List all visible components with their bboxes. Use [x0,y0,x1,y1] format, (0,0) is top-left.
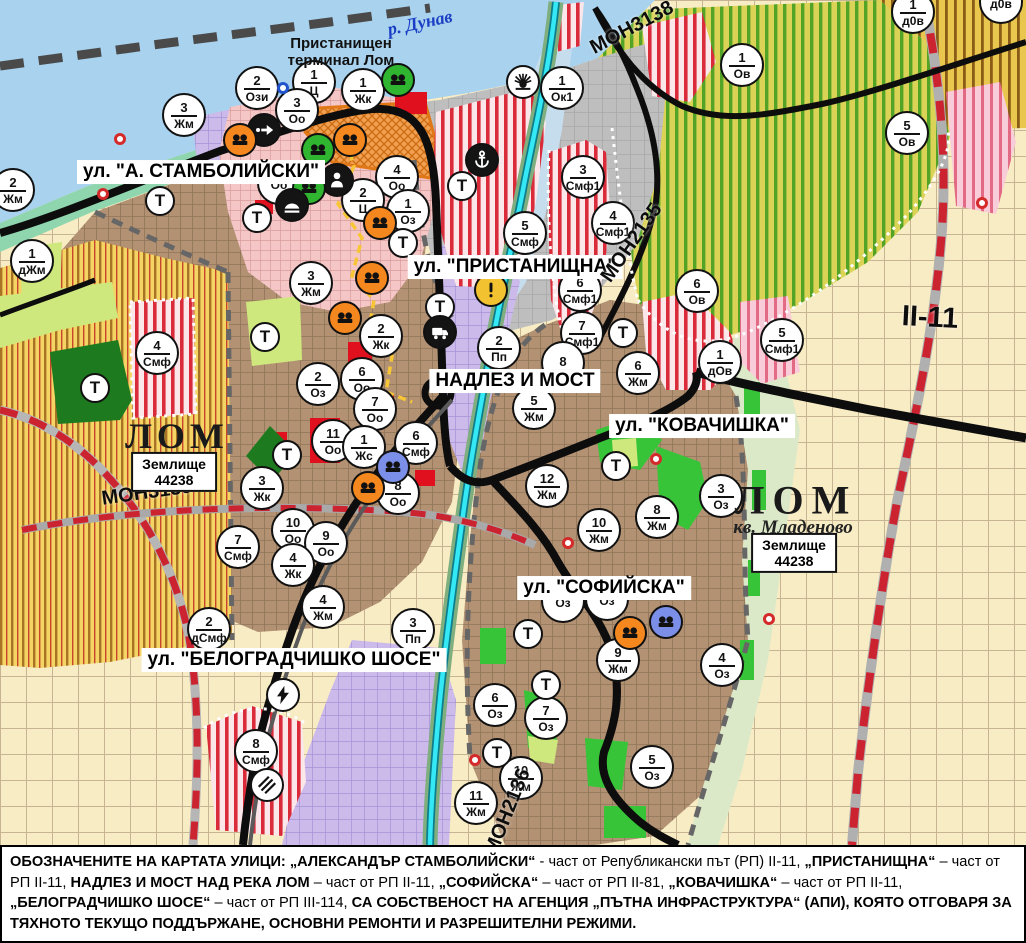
zone-marker-code: Оо [325,444,342,456]
zone-marker[interactable]: 3Жм [162,93,206,137]
zone-marker-number: 12 [540,472,554,485]
zone-marker-number: 3 [258,474,265,487]
mound-icon[interactable] [275,188,309,222]
zone-marker-number: 7 [578,319,585,332]
zone-marker[interactable]: 6Смф1 [558,268,602,312]
zone-marker-code: Ок1 [551,91,573,103]
zone-marker-code: Жм [301,286,321,298]
caption-segment: – част от РП II-81, [538,875,668,891]
zone-marker-number: 1 [909,0,916,11]
zone-marker-number: 5 [521,219,528,232]
zone-marker-number: 2 [314,370,321,383]
poi-dot[interactable] [114,133,126,145]
transport-t-marker[interactable]: Т [531,670,561,700]
zone-marker-number: 10 [592,516,606,529]
zone-marker-number: 1 [558,74,565,87]
zone-marker[interactable]: 1дЖм [10,239,54,283]
ind-glyph [369,212,391,234]
zone-marker-number: 8 [653,503,660,516]
zone-marker-number: 2 [205,615,212,628]
zone-marker-number: 5 [530,394,537,407]
zone-marker[interactable]: 3Смф1 [561,155,605,199]
zone-marker-code: Оз [400,214,415,226]
zone-marker[interactable]: 12Жм [525,464,569,508]
zone-marker-code: Жм [466,806,486,818]
caption-segment: „ПРИСТАНИЩНА“ [804,854,935,870]
zone-marker-number: 6 [412,429,419,442]
zone-marker-code: Жм [3,193,23,205]
zone-marker-code: Смф1 [566,180,601,192]
zone-marker-code: Жм [608,663,628,675]
zone-marker-number: 6 [693,277,700,290]
transport-t-marker[interactable]: Т [513,619,543,649]
zone-marker[interactable]: 2Ози [235,66,279,110]
zone-marker-code: Оз [555,597,570,609]
zone-marker[interactable]: 4Оз [700,643,744,687]
caption-segment: НАДЛЕЗ И МОСТ НАД РЕКА ЛОМ [71,875,310,891]
zone-marker-code: Жм [628,376,648,388]
transport-t-marker[interactable]: Т [80,373,110,403]
zone-marker[interactable]: 3Оз [699,474,743,518]
zone-marker[interactable]: 5Ов [885,111,929,155]
zone-marker-code: Ов [899,136,916,148]
poi-dot[interactable] [763,613,775,625]
poi-dot[interactable] [469,754,481,766]
ind-glyph [655,611,677,633]
zone-marker-code: Смф [224,550,252,562]
zone-marker[interactable]: 8 [541,341,585,385]
zone-marker-code: Жм [524,411,544,423]
railx-glyph [256,774,278,796]
zone-marker[interactable]: 1дОв [698,340,742,384]
ind-glyph [334,307,356,329]
zone-marker-number: 1 [738,51,745,64]
zone-marker-number: 11 [469,789,483,802]
map-canvas[interactable]: 2Ози1Ц1Жк3Оо1Ок13ЖмОо4Оо2Ц1Оз1дЖм2Жм3Жм2… [0,0,1026,845]
zone-marker-code: Жм [511,781,531,793]
sun-icon[interactable] [506,65,540,99]
ind-icon[interactable] [613,616,647,650]
zone-marker-number: 3 [579,163,586,176]
zone-marker-number: 1 [360,433,367,446]
zone-marker-number: 10 [286,516,300,529]
zone-marker-code: Пп [491,351,507,363]
zone-marker-number: 2 [377,322,384,335]
map-caption: ОБОЗНАЧЕНИТЕ НА КАРТАТА УЛИЦИ: „АЛЕКСАНД… [0,845,1026,943]
zone-marker-number: 4 [319,593,326,606]
zone-marker-code: Оз [713,499,728,511]
zone-marker-number: 4 [289,551,296,564]
zone-marker-number: 4 [609,209,616,222]
zone-marker-number: 6 [491,691,498,704]
zone-marker-number: 3 [307,269,314,282]
truck-glyph [429,321,451,343]
zone-marker-number: 7 [542,704,549,717]
ind-glyph [229,129,251,151]
zone-marker-code: Жк [254,491,271,503]
zone-marker[interactable]: 4Смф [135,331,179,375]
transport-t-marker[interactable]: Т [250,322,280,352]
ind-glyph [382,456,404,478]
zone-marker[interactable]: 3Жм [289,261,333,305]
transport-t-marker[interactable]: Т [272,440,302,470]
person-glyph [326,169,348,191]
zone-marker-code: Смф1 [765,343,800,355]
zone-marker-code: Жм [313,610,333,622]
caption-segment: „КОВАЧИШКА“ [668,875,777,891]
bolt-icon[interactable] [266,678,300,712]
zone-marker-code: Жм [537,489,557,501]
sun-glyph [512,71,534,93]
zone-marker[interactable]: 4Жм [301,585,345,629]
ind-icon[interactable] [363,206,397,240]
truck-icon[interactable] [423,315,457,349]
excl-icon[interactable] [474,273,508,307]
zone-marker-code: Жк [285,568,302,580]
zone-marker-number: 6 [634,359,641,372]
zone-marker-code: Пп [405,633,421,645]
zone-marker-code: дОв [708,365,732,377]
zone-marker[interactable]: 6Жм [616,351,660,395]
zone-marker-code: Жк [355,93,372,105]
zone-marker-number: 2 [9,176,16,189]
zone-marker-number: 2 [359,186,366,199]
zone-marker-code: Ов [689,294,706,306]
zone-marker-number: 11 [326,427,340,440]
zone-marker-number: 5 [648,753,655,766]
zone-marker-code: Оо [367,412,384,424]
zone-marker[interactable]: Оз [541,579,585,623]
zone-marker[interactable]: 2Жк [359,314,403,358]
zone-marker-number: 10 [514,764,528,777]
zone-marker-number: 5 [778,326,785,339]
zone-marker[interactable]: 1Жк [341,68,385,112]
zone-marker[interactable]: Оз [585,577,629,621]
zone-marker-number: 5 [903,119,910,132]
zone-marker-code: Смф1 [563,293,598,305]
ind-icon[interactable] [355,261,389,295]
zone-marker-number: 1 [404,197,411,210]
anchor-glyph [471,149,493,171]
zone-marker-number: 6 [576,276,583,289]
zone-marker[interactable]: 10Жм [577,508,621,552]
ind-icon[interactable] [381,63,415,97]
zone-marker-code: Смф1 [596,226,631,238]
zone-marker-code: Смф [143,356,171,368]
bolt-glyph [272,684,294,706]
ind-glyph [387,69,409,91]
zone-marker-code: Ози [246,91,269,103]
caption-segment: „СОФИЙСКА“ [439,875,539,891]
zone-marker[interactable]: 5Оз [630,745,674,789]
ind-glyph [619,622,641,644]
zone-marker-code: Оз [714,668,729,680]
caption-segment: – част от РП II-11, [310,875,439,891]
zone-marker-number: 3 [293,96,300,109]
zone-marker-code: Оз [644,770,659,782]
zone-marker-code: Жм [174,118,194,130]
zone-marker-number: 6 [358,365,365,378]
zone-marker-number: 3 [409,616,416,629]
zone-marker-code: дСмф [191,632,227,644]
zone-marker-code: Оз [487,708,502,720]
zone-marker[interactable]: 4Жк [271,543,315,587]
zone-marker-code: Смф [511,236,539,248]
ind-icon[interactable] [328,301,362,335]
ind-glyph [361,267,383,289]
zone-marker-number: 1 [28,247,35,260]
zone-marker[interactable]: 6Ов [675,269,719,313]
ind-icon[interactable] [351,471,385,505]
zone-marker-number: 2 [253,74,260,87]
zone-marker-number: 8 [252,737,259,750]
poi-dot[interactable] [650,453,662,465]
zone-marker-code: д0в [902,15,924,27]
excl-glyph [480,279,502,301]
zone-marker[interactable]: 11Жм [454,781,498,825]
zone-marker[interactable]: 2Пп [477,326,521,370]
zone-marker[interactable]: 3Пп [391,608,435,652]
zone-marker-code: Оо [289,113,306,125]
zone-marker[interactable]: 7Оз [524,696,568,740]
poi-dot[interactable] [562,537,574,549]
transport-t-marker[interactable]: Т [482,738,512,768]
zone-marker-code: Оо [318,546,335,558]
zone-marker[interactable]: 7Смф [216,525,260,569]
transport-t-marker[interactable]: Т [145,186,175,216]
zone-marker-code: дЖм [18,264,45,276]
zone-marker-code: Оз [538,721,553,733]
ind-icon[interactable] [333,123,367,157]
ind-icon[interactable] [301,133,335,167]
zone-marker-number: 9 [322,529,329,542]
zone-marker-number: 1 [716,348,723,361]
zone-marker[interactable]: 6Оз [473,683,517,727]
zone-marker-code: Жм [647,520,667,532]
ind-glyph [357,477,379,499]
zone-marker[interactable]: 3Оо [275,88,319,132]
zone-marker[interactable]: 2Оз [296,362,340,406]
zone-marker-code: Жм [589,533,609,545]
zone-marker-number: 1 [359,76,366,89]
poi-dot[interactable] [277,82,289,94]
poi-dot[interactable] [976,197,988,209]
transport-t-marker[interactable]: Т [242,203,272,233]
map-base-art [0,0,1026,845]
zone-marker-number: 8 [559,355,566,368]
poi-dot[interactable] [97,188,109,200]
zone-marker-code: д0в [990,0,1012,10]
zone-marker-number: 3 [180,101,187,114]
zone-marker-code: Смф [242,754,270,766]
railx-icon[interactable] [250,768,284,802]
zone-marker-number: 7 [234,533,241,546]
zone-marker[interactable]: 4Смф1 [591,201,635,245]
transport-t-marker[interactable]: Т [601,451,631,481]
ind-glyph [339,129,361,151]
caption-segment: ОБОЗНАЧЕНИТЕ НА КАРТАТА УЛИЦИ: „АЛЕКСАНД… [10,854,535,870]
caption-segment: - част от Републикански път (РП) II-11, [535,854,804,870]
zone-marker-number: 4 [153,339,160,352]
zone-marker-code: Жк [373,339,390,351]
zone-marker[interactable]: 8Жм [635,495,679,539]
zone-marker[interactable]: 8Смф [234,729,278,773]
mound-glyph [281,194,303,216]
zone-marker-code: Жс [355,450,373,462]
zone-marker[interactable]: 3Жк [240,466,284,510]
zone-marker[interactable]: 1Ов [720,43,764,87]
zone-marker-number: 1 [310,68,317,81]
ind-icon[interactable] [223,123,257,157]
caption-segment: „БЕЛОГРАДЧИШКО ШОСЕ“ [10,895,210,911]
zone-marker-divider [550,369,576,371]
zone-marker[interactable]: 1Ок1 [540,66,584,110]
caption-segment: – част от РП II-11, [777,875,902,891]
zone-marker[interactable]: 2дСмф [187,607,231,651]
zone-marker-number: 4 [718,651,725,664]
zone-marker[interactable]: 5Смф [503,211,547,255]
transport-t-marker[interactable]: Т [447,171,477,201]
zone-marker-number: 2 [495,334,502,347]
zone-marker-code: Оз [599,595,614,607]
anchor-icon[interactable] [465,143,499,177]
zone-marker[interactable]: 5Жм [512,386,556,430]
zone-marker-code: Оо [390,496,407,508]
ind-icon[interactable] [649,605,683,639]
zone-marker[interactable]: 5Смф1 [760,318,804,362]
zone-marker-number: 4 [393,163,400,176]
zone-marker-code: Оз [310,387,325,399]
zone-marker-number: 7 [371,395,378,408]
zone-marker-number: 3 [717,482,724,495]
transport-t-marker[interactable]: Т [608,318,638,348]
caption-segment: – част от РП III-114, [210,895,351,911]
zone-marker-code: Ов [734,68,751,80]
map-document: 2Ози1Ц1Жк3Оо1Ок13ЖмОо4Оо2Ц1Оз1дЖм2Жм3Жм2… [0,0,1026,943]
ind-glyph [307,139,329,161]
